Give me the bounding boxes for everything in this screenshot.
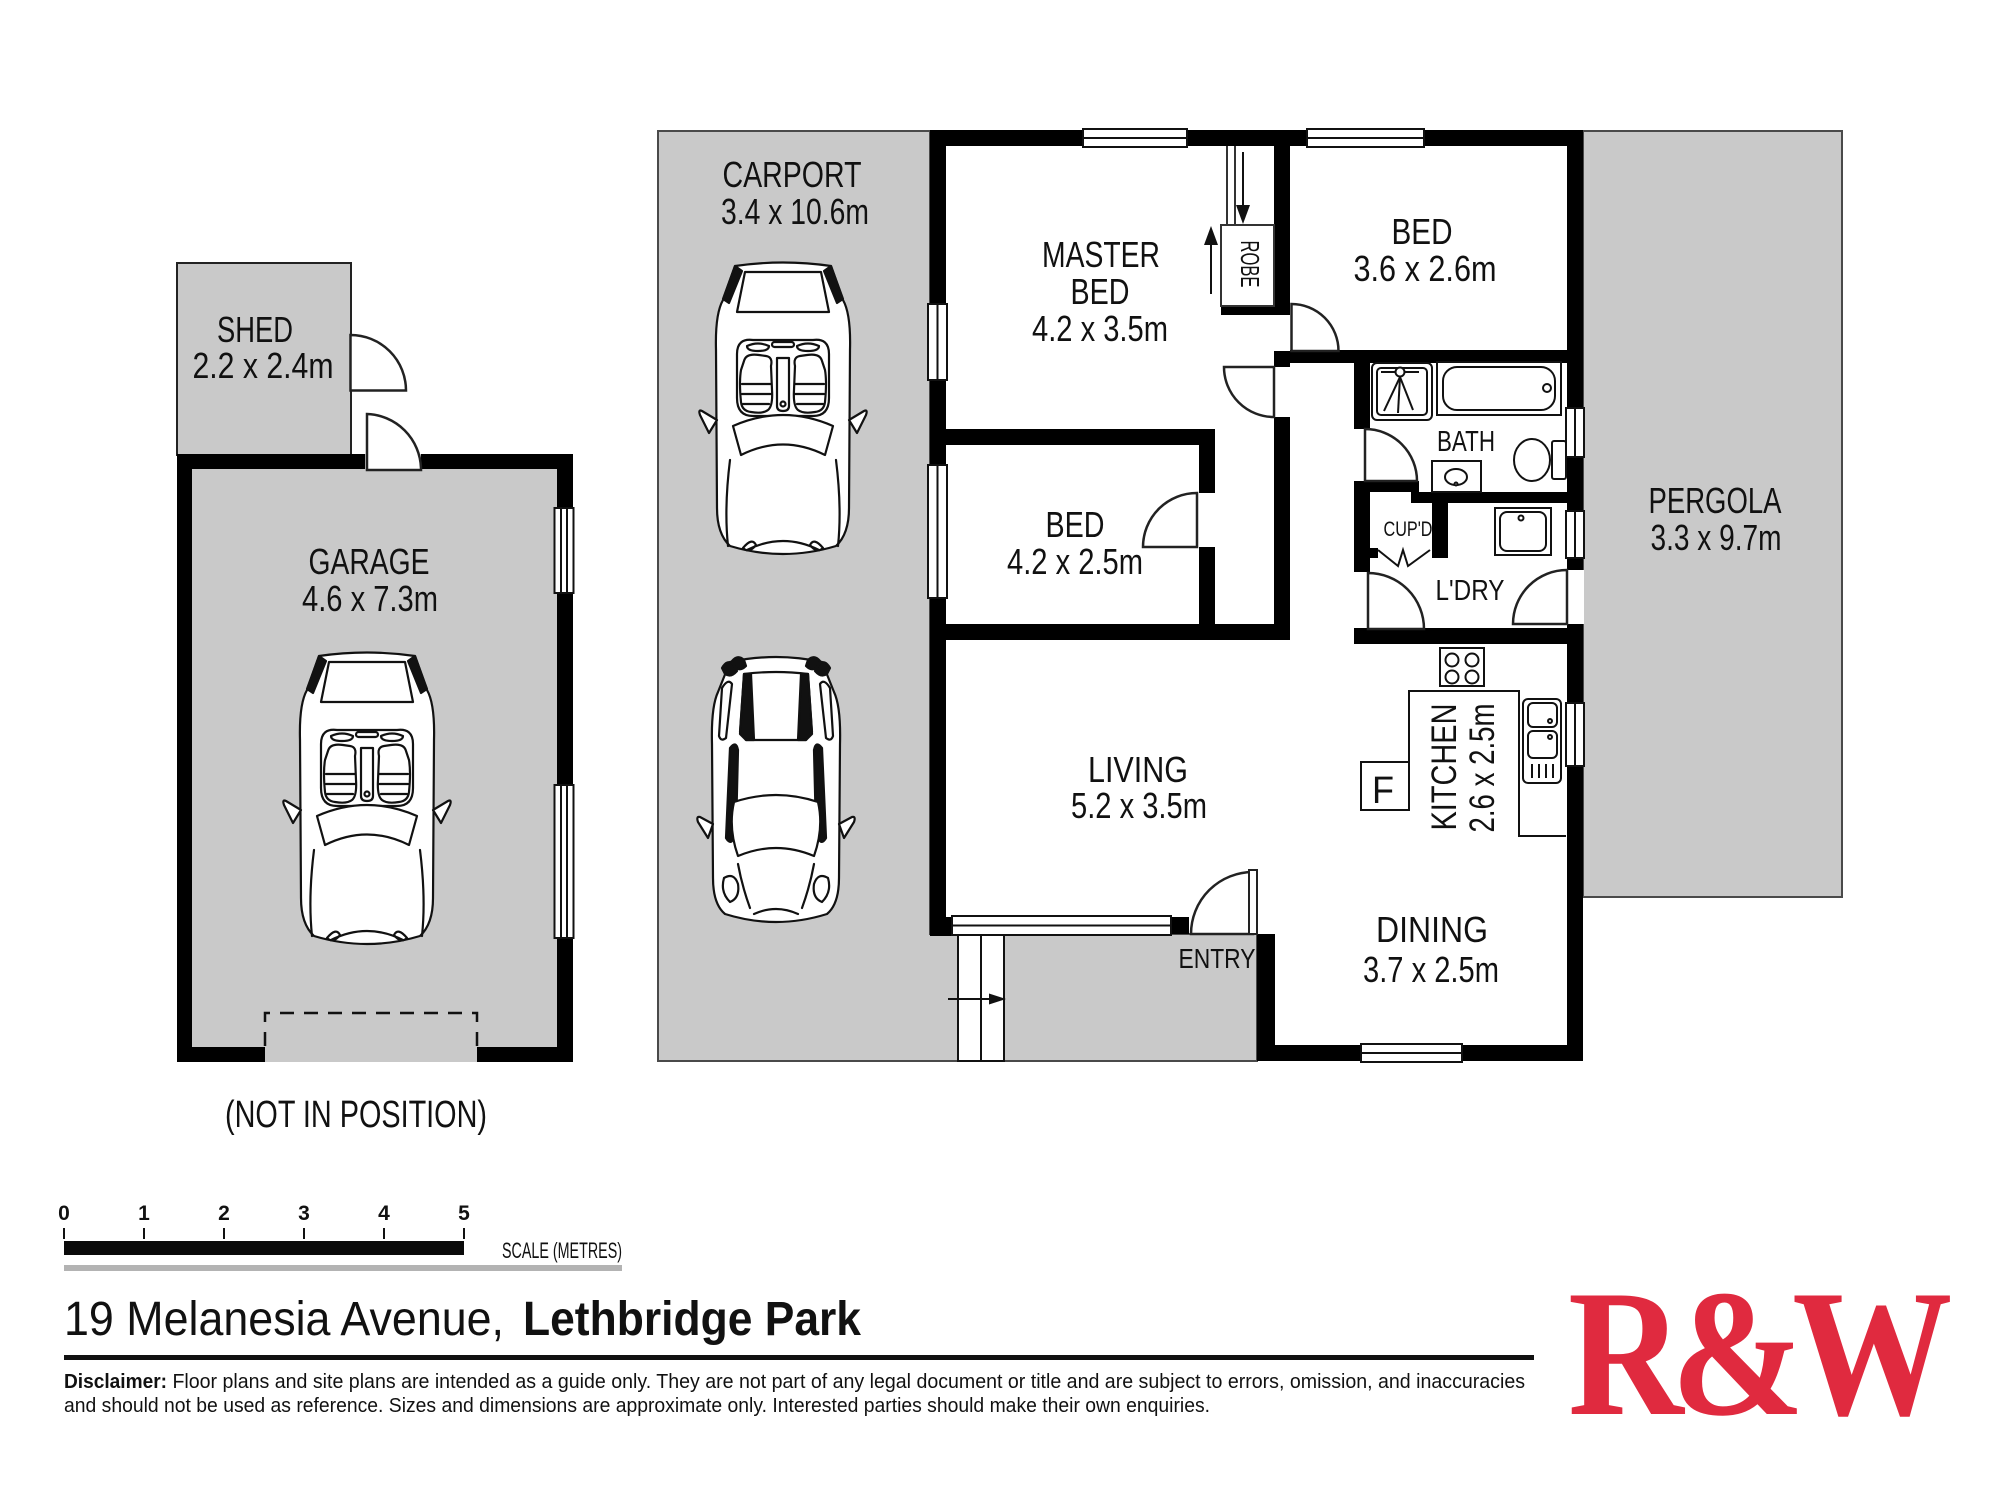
svg-text:SHED: SHED bbox=[217, 309, 293, 350]
svg-text:5: 5 bbox=[458, 1202, 470, 1225]
svg-text:BED: BED bbox=[1071, 271, 1130, 312]
svg-text:CARPORT: CARPORT bbox=[723, 154, 862, 195]
svg-text:3.7 x 2.5m: 3.7 x 2.5m bbox=[1363, 949, 1499, 990]
svg-text:2.2 x 2.4m: 2.2 x 2.4m bbox=[193, 345, 334, 386]
svg-text:4: 4 bbox=[378, 1202, 390, 1225]
svg-text:and should not be used as refe: and should not be used as reference. Siz… bbox=[64, 1395, 1210, 1417]
svg-text:L'DRY: L'DRY bbox=[1436, 575, 1505, 607]
svg-text:MASTER: MASTER bbox=[1042, 234, 1160, 275]
svg-text:F: F bbox=[1372, 770, 1394, 812]
svg-text:BED: BED bbox=[1392, 211, 1453, 252]
svg-text:2.6 x 2.5m: 2.6 x 2.5m bbox=[1463, 704, 1502, 833]
svg-text:2: 2 bbox=[218, 1202, 230, 1225]
svg-text:DINING: DINING bbox=[1376, 909, 1488, 950]
svg-text:1: 1 bbox=[138, 1202, 150, 1225]
svg-text:CUP'D: CUP'D bbox=[1384, 518, 1433, 541]
svg-text:4.6 x 7.3m: 4.6 x 7.3m bbox=[302, 578, 438, 619]
svg-text:(NOT IN POSITION): (NOT IN POSITION) bbox=[225, 1094, 487, 1136]
svg-text:5.2 x 3.5m: 5.2 x 3.5m bbox=[1071, 785, 1207, 826]
svg-text:4.2 x 3.5m: 4.2 x 3.5m bbox=[1032, 308, 1168, 349]
svg-text:0: 0 bbox=[58, 1202, 70, 1225]
svg-text:3.3 x 9.7m: 3.3 x 9.7m bbox=[1651, 517, 1782, 558]
svg-text:ROBE: ROBE bbox=[1235, 241, 1265, 288]
svg-text:3: 3 bbox=[298, 1202, 310, 1225]
svg-text:4.2 x 2.5m: 4.2 x 2.5m bbox=[1007, 541, 1143, 582]
svg-text:ENTRY: ENTRY bbox=[1179, 943, 1256, 974]
svg-text:R&W: R&W bbox=[1568, 1254, 1951, 1454]
svg-text:Disclaimer: Floor plans and si: Disclaimer: Floor plans and site plans a… bbox=[64, 1371, 1525, 1393]
svg-text:BED: BED bbox=[1046, 504, 1105, 545]
svg-text:3.6 x 2.6m: 3.6 x 2.6m bbox=[1354, 248, 1497, 289]
svg-text:LIVING: LIVING bbox=[1088, 749, 1188, 790]
svg-text:SCALE (METRES): SCALE (METRES) bbox=[502, 1238, 622, 1263]
svg-text:19 Melanesia Avenue,Lethbridge: 19 Melanesia Avenue,Lethbridge Park bbox=[64, 1293, 861, 1346]
svg-text:PERGOLA: PERGOLA bbox=[1649, 480, 1782, 521]
svg-text:BATH: BATH bbox=[1437, 426, 1495, 458]
svg-text:3.4 x 10.6m: 3.4 x 10.6m bbox=[721, 191, 869, 232]
svg-text:KITCHEN: KITCHEN bbox=[1425, 704, 1464, 831]
svg-text:GARAGE: GARAGE bbox=[309, 541, 430, 582]
